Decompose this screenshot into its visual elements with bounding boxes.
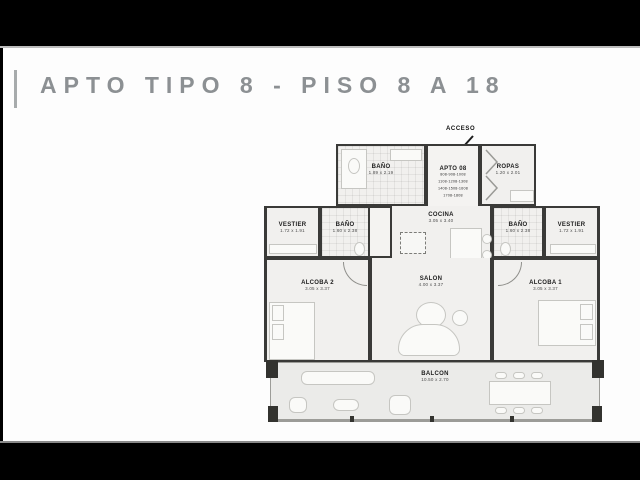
- toilet: [354, 242, 365, 256]
- room-name: COCINA: [428, 212, 453, 218]
- room-vestier-left: VESTIER 1.72 x 1.91: [264, 206, 320, 258]
- toilet: [348, 158, 360, 174]
- appliance-zone: [400, 232, 426, 254]
- rail-post: [350, 416, 354, 422]
- room-dim: 1.72 x 1.91: [273, 229, 311, 234]
- lounge-chair: [389, 395, 411, 415]
- room-salon: SALON 4.00 x 3.37: [370, 258, 492, 362]
- room-name: VESTIER: [558, 222, 586, 228]
- room-dim: 1.60 x 2.38: [328, 229, 363, 234]
- room-name: VESTIER: [279, 222, 307, 228]
- outdoor-stool: [289, 397, 307, 413]
- column: [592, 406, 602, 422]
- room-name: BAÑO: [372, 164, 391, 170]
- vanity: [390, 149, 422, 161]
- balcony-rail: [278, 419, 592, 421]
- pillow: [272, 305, 284, 321]
- column: [268, 406, 278, 422]
- pillow: [580, 324, 593, 340]
- stool: [482, 234, 492, 244]
- room-bano-top: BAÑO 1.89 x 2.19: [336, 144, 426, 206]
- hallway: [370, 206, 390, 258]
- louver-door-icon: [484, 148, 500, 202]
- closet: [269, 244, 317, 254]
- chair: [531, 407, 543, 414]
- room-balcon: BALCON 10.50 x 2.70: [270, 362, 600, 422]
- pillow: [580, 304, 593, 320]
- room-ropas: ROPAS 1.20 x 2.01: [480, 144, 536, 206]
- title-accent-bar: [14, 70, 17, 108]
- slide-area: APTO TIPO 8 - PISO 8 A 18 ACCESO BAÑO 1.…: [3, 48, 640, 441]
- room-name: BAÑO: [336, 222, 355, 228]
- coffee-table: [333, 399, 359, 411]
- unit-numbers-line: 808-908-1008: [438, 173, 469, 177]
- unit-numbers-line: 1408-1508-1608: [438, 187, 469, 191]
- sofa: [398, 324, 460, 356]
- bottom-black-bar: [0, 441, 640, 480]
- planter-bench: [301, 371, 375, 385]
- room-dim: 1.72 x 1.91: [552, 229, 590, 234]
- unit-numbers-line: 1708-1808: [438, 194, 469, 198]
- dining-table: [489, 381, 551, 405]
- room-apto-entry: APTO 08 808-908-1008 1108-1208-1308 1408…: [426, 144, 480, 206]
- room-name: BALCON: [421, 371, 448, 377]
- chair: [495, 372, 507, 379]
- closet: [550, 244, 596, 254]
- room-dim: 3.05 x 3.40: [404, 219, 478, 224]
- room-dim: 4.00 x 3.37: [387, 283, 476, 288]
- room-bano-right: BAÑO 1.60 x 2.38: [492, 206, 544, 258]
- chair: [513, 407, 525, 414]
- room-name: BAÑO: [509, 222, 528, 228]
- chair: [495, 407, 507, 414]
- page-title: APTO TIPO 8 - PISO 8 A 18: [40, 72, 506, 99]
- room-name: ROPAS: [497, 164, 519, 170]
- room-alcoba2: ALCOBA 2 3.05 x 3.37: [264, 258, 370, 362]
- slide-stage: APTO TIPO 8 - PISO 8 A 18 ACCESO BAÑO 1.…: [0, 0, 640, 480]
- top-black-bar: [0, 0, 640, 48]
- chair: [531, 372, 543, 379]
- room-cocina: COCINA 3.05 x 3.40: [390, 206, 492, 258]
- room-bano-left: BAÑO 1.60 x 2.38: [320, 206, 370, 258]
- acceso-label: ACCESO: [446, 126, 475, 132]
- column: [592, 360, 604, 378]
- room-alcoba1: ALCOBA 1 3.05 x 3.37: [492, 258, 600, 362]
- column: [266, 360, 278, 378]
- floor-plan: ACCESO BAÑO 1.89 x 2.19 APTO 08 808-908-…: [262, 126, 602, 426]
- room-dim: 3.05 x 3.37: [507, 287, 584, 292]
- room-vestier-right: VESTIER 1.72 x 1.91: [544, 206, 600, 258]
- room-name: SALON: [420, 276, 443, 282]
- chair: [513, 372, 525, 379]
- rail-post: [510, 416, 514, 422]
- rail-post: [430, 416, 434, 422]
- side-table: [452, 310, 468, 326]
- room-dim: 3.05 x 3.37: [280, 287, 356, 292]
- pillow: [272, 324, 284, 340]
- toilet: [500, 242, 511, 256]
- washer: [510, 190, 534, 202]
- room-dim: 1.60 x 2.38: [500, 229, 536, 234]
- room-name: ALCOBA 1: [529, 280, 562, 286]
- unit-numbers-line: 1108-1208-1308: [438, 180, 469, 184]
- room-name: APTO 08: [440, 166, 467, 172]
- room-name: ALCOBA 2: [301, 280, 334, 286]
